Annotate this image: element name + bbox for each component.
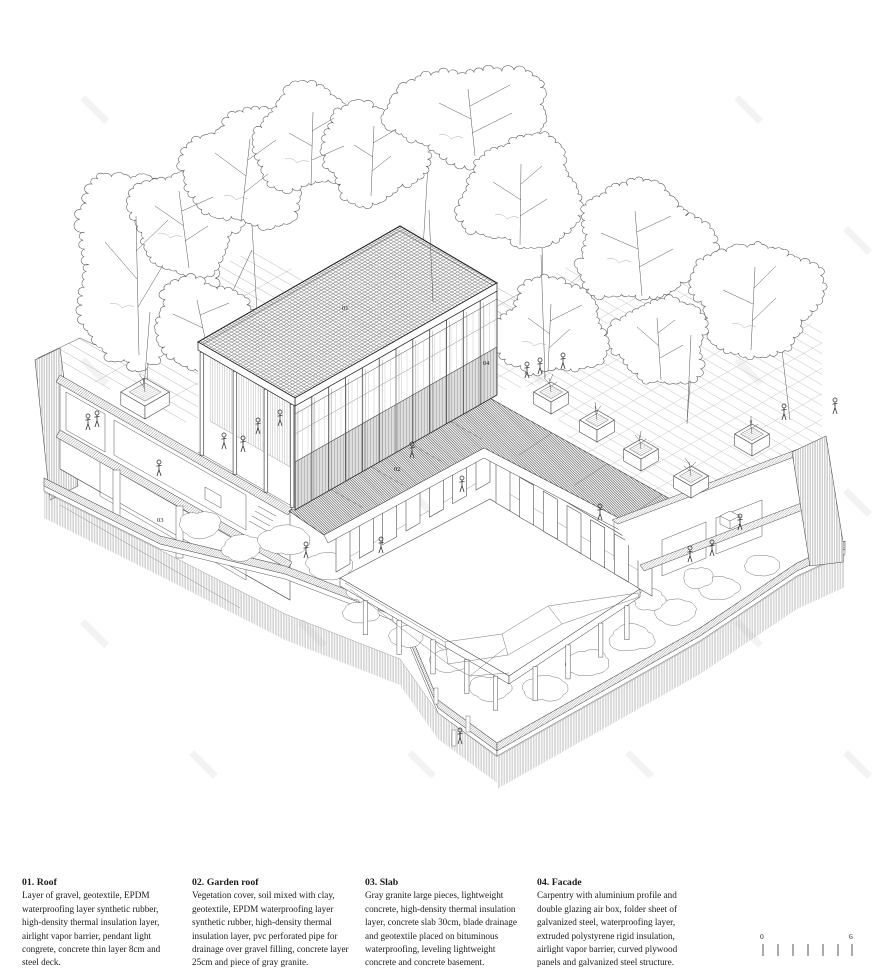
svg-text:02: 02	[394, 466, 401, 473]
svg-text:0: 0	[760, 932, 764, 941]
svg-text:04: 04	[483, 360, 490, 367]
svg-text:03: 03	[157, 517, 164, 524]
svg-text:6: 6	[849, 932, 853, 941]
svg-text:01: 01	[342, 305, 349, 312]
